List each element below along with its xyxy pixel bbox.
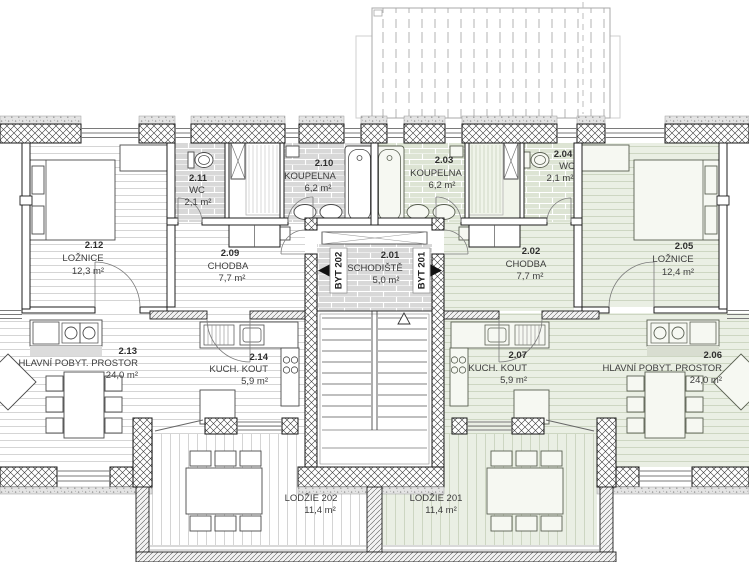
room-name: KUCH. KOUT xyxy=(468,363,527,374)
room-number: 2.04 xyxy=(554,149,573,160)
room-area: 7,7 m² xyxy=(517,271,544,282)
room-area: 5,9 m² xyxy=(500,375,527,386)
terrace-corner-detail xyxy=(374,10,382,16)
entry-lintel xyxy=(322,232,427,244)
room-area: 5,9 m² xyxy=(241,376,268,387)
bed-205 xyxy=(634,160,719,240)
room-number: 2.01 xyxy=(381,250,400,261)
room-area: 6,2 m² xyxy=(429,180,456,191)
room-number: 2.12 xyxy=(85,240,104,251)
room-number: 2.06 xyxy=(704,350,723,361)
room-name: LOŽNICE xyxy=(652,254,693,265)
room-area: 2,1 m² xyxy=(185,197,212,208)
terrace-above xyxy=(356,2,620,118)
room-number: 2.09 xyxy=(221,248,240,259)
right-wall-vent xyxy=(717,196,729,205)
terrace-decking xyxy=(372,8,610,118)
loggia-202-table xyxy=(186,451,262,531)
loggia-201-table xyxy=(487,451,563,531)
room-name: SCHODIŠTĚ xyxy=(347,263,402,274)
room-name: WC xyxy=(559,161,575,172)
toilet-211 xyxy=(188,152,213,168)
room-area: 11,4 m² xyxy=(304,505,336,516)
room-area: 2,1 m² xyxy=(547,173,574,184)
room-number: 2.07 xyxy=(509,350,528,361)
room-area: 7,7 m² xyxy=(219,273,246,284)
room-area: 12,3 m² xyxy=(72,266,104,277)
living-213-appliances xyxy=(30,320,102,356)
room-number: 2.14 xyxy=(250,352,269,363)
room-name: CHODBA xyxy=(208,261,249,272)
bed-212 xyxy=(30,160,115,240)
floor-plan: BYT 202 BYT 201 2.12 LOŽNICE 12,3 m² 2.1… xyxy=(0,0,749,562)
room-area: 5,0 m² xyxy=(373,275,400,286)
room-area: 11,4 m² xyxy=(425,505,457,516)
room-number: 2.02 xyxy=(522,246,541,257)
byt-201-tag: BYT 201 xyxy=(417,251,428,289)
room-number: 2.13 xyxy=(119,346,138,357)
room-number: 2.10 xyxy=(315,158,334,169)
room-name: WC xyxy=(189,185,205,196)
room-name: LODŽIE 201 xyxy=(410,493,463,504)
bathtub-203 xyxy=(375,146,404,224)
room-name: KOUPELNA xyxy=(410,168,462,179)
toilet-204 xyxy=(524,152,549,168)
wardrobe-212 xyxy=(120,145,167,171)
wardrobe-205 xyxy=(582,145,629,171)
byt-202-tag: BYT 202 xyxy=(334,252,345,290)
room-name: LOŽNICE xyxy=(62,253,103,264)
room-name: CHODBA xyxy=(506,259,547,270)
room-name: HLAVNÍ POBYT. PROSTOR xyxy=(603,363,723,374)
room-name: KUCH. KOUT xyxy=(209,364,268,375)
room-name: KOUPELNA xyxy=(284,171,336,182)
room-area: 6,2 m² xyxy=(305,183,332,194)
stair-well xyxy=(317,311,432,467)
floor-plan-svg: BYT 202 BYT 201 2.12 LOŽNICE 12,3 m² 2.1… xyxy=(0,0,749,562)
room-name: LODŽIE 202 xyxy=(285,493,338,504)
room-number: 2.03 xyxy=(435,155,454,166)
room-area: 24,0 m² xyxy=(106,370,138,381)
bathtub-210 xyxy=(345,146,374,224)
dining-table-213 xyxy=(46,372,122,438)
room-area: 12,4 m² xyxy=(662,267,694,278)
room-number: 2.05 xyxy=(675,241,694,252)
room-number: 2.11 xyxy=(189,173,208,184)
left-wall-vent xyxy=(20,196,32,205)
room-name: HLAVNÍ POBYT. PROSTOR xyxy=(19,358,139,369)
room-area: 24,0 m² xyxy=(690,375,722,386)
